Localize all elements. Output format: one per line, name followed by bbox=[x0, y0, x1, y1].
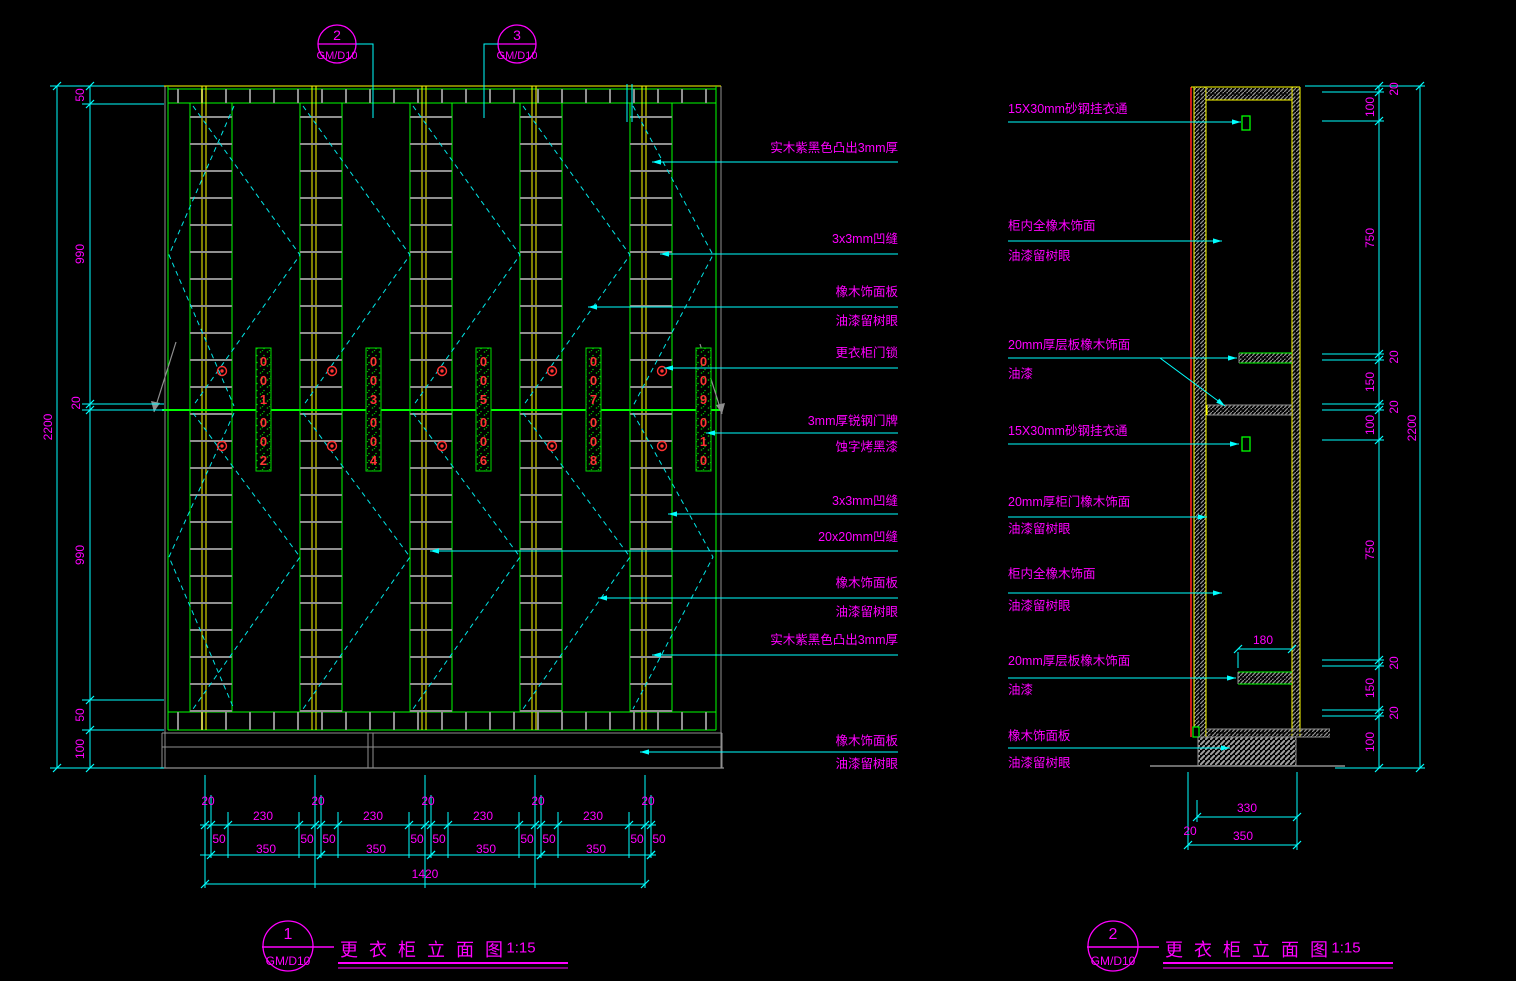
cad-canvas: 001002003004005006007008009010 2 GM/D10 … bbox=[0, 0, 1516, 981]
plate-digit: 5 bbox=[480, 392, 487, 407]
plate-digit: 0 bbox=[590, 434, 597, 449]
plate-digit: 0 bbox=[590, 415, 597, 430]
plate-digit: 7 bbox=[590, 392, 597, 407]
plate-digit: 0 bbox=[480, 434, 487, 449]
plate-digit: 0 bbox=[260, 354, 267, 369]
plate-digit: 6 bbox=[480, 453, 487, 468]
plate-digit: 0 bbox=[370, 373, 377, 388]
cad-linework: 001002003004005006007008009010 bbox=[0, 0, 1516, 981]
plate-digit: 8 bbox=[590, 453, 597, 468]
plate-digit: 3 bbox=[370, 392, 377, 407]
callout-title-linework bbox=[262, 25, 1393, 971]
plate-digit: 0 bbox=[480, 415, 487, 430]
plate-digit: 0 bbox=[590, 354, 597, 369]
plate-digit: 2 bbox=[260, 453, 267, 468]
plate-digit: 1 bbox=[260, 392, 267, 407]
section-drawing bbox=[1150, 87, 1345, 766]
plate-digit: 0 bbox=[700, 373, 707, 388]
plate-digit: 0 bbox=[480, 373, 487, 388]
plate-digit: 4 bbox=[370, 453, 378, 468]
dimension-linework bbox=[50, 82, 1425, 888]
elevation-drawing: 001002003004005006007008009010 bbox=[151, 86, 725, 768]
plate-digit: 0 bbox=[370, 354, 377, 369]
plate-digit: 1 bbox=[700, 434, 707, 449]
plate-digit: 0 bbox=[700, 354, 707, 369]
plate-digit: 0 bbox=[260, 415, 267, 430]
plate-digit: 0 bbox=[260, 373, 267, 388]
plate-digit: 0 bbox=[370, 434, 377, 449]
plate-digit: 0 bbox=[480, 354, 487, 369]
plate-digit: 0 bbox=[370, 415, 377, 430]
plate-digit: 0 bbox=[700, 453, 707, 468]
plate-digit: 0 bbox=[700, 415, 707, 430]
plate-digit: 0 bbox=[590, 373, 597, 388]
plate-digit: 9 bbox=[700, 392, 707, 407]
plate-digit: 0 bbox=[260, 434, 267, 449]
